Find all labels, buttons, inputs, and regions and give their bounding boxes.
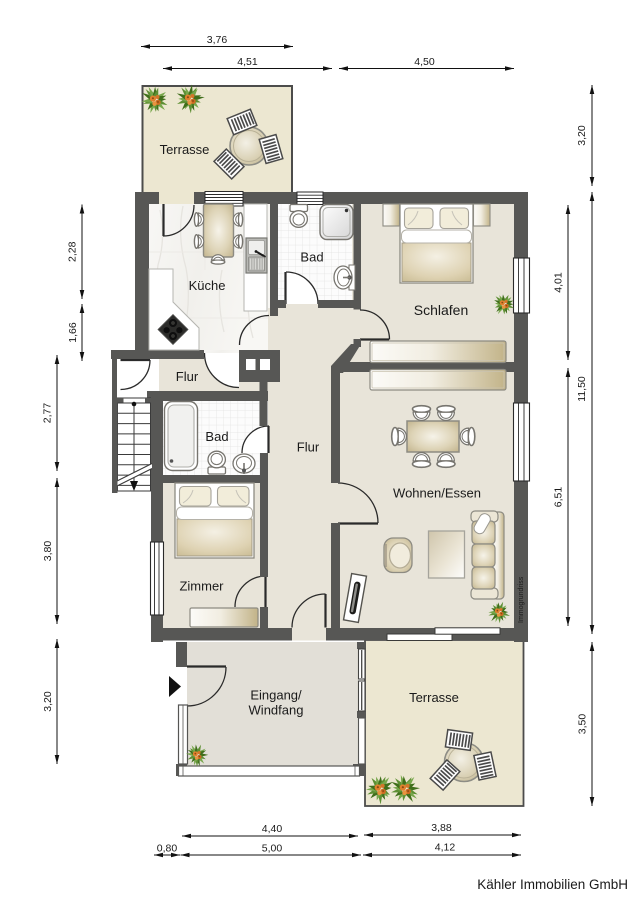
svg-text:4,01: 4,01 <box>553 272 565 293</box>
svg-text:Kähler Immobilien GmbH: Kähler Immobilien GmbH <box>477 877 628 892</box>
svg-text:4,51: 4,51 <box>237 56 258 68</box>
svg-text:Terrasse: Terrasse <box>160 142 210 157</box>
svg-text:4,40: 4,40 <box>262 823 283 835</box>
svg-text:Flur: Flur <box>297 440 320 455</box>
svg-text:Terrasse: Terrasse <box>409 690 459 705</box>
svg-text:11,50: 11,50 <box>576 376 588 402</box>
svg-text:Windfang: Windfang <box>249 703 304 718</box>
svg-text:1,66: 1,66 <box>67 322 79 343</box>
svg-text:6,51: 6,51 <box>553 487 565 508</box>
svg-text:Küche: Küche <box>189 278 226 293</box>
svg-text:4,50: 4,50 <box>414 56 435 68</box>
svg-text:Eingang/: Eingang/ <box>250 688 302 703</box>
svg-text:Wohnen/Essen: Wohnen/Essen <box>393 486 481 501</box>
svg-text:Schlafen: Schlafen <box>414 302 468 318</box>
svg-text:Immogrundriss: Immogrundriss <box>518 576 525 623</box>
svg-text:0,80: 0,80 <box>157 843 178 855</box>
svg-text:Bad: Bad <box>205 429 228 444</box>
svg-text:5,00: 5,00 <box>262 843 283 855</box>
svg-text:3,76: 3,76 <box>207 34 228 46</box>
svg-text:Bad: Bad <box>300 250 323 265</box>
svg-text:2,77: 2,77 <box>42 403 54 424</box>
svg-text:3,20: 3,20 <box>576 125 588 146</box>
svg-text:Zimmer: Zimmer <box>179 579 224 594</box>
svg-text:3,50: 3,50 <box>577 714 589 735</box>
svg-text:Flur: Flur <box>176 369 199 384</box>
svg-text:3,80: 3,80 <box>42 541 54 562</box>
svg-text:4,12: 4,12 <box>435 842 456 854</box>
svg-text:3,20: 3,20 <box>42 691 54 712</box>
svg-text:2,28: 2,28 <box>67 241 79 262</box>
svg-text:3,88: 3,88 <box>431 822 452 834</box>
